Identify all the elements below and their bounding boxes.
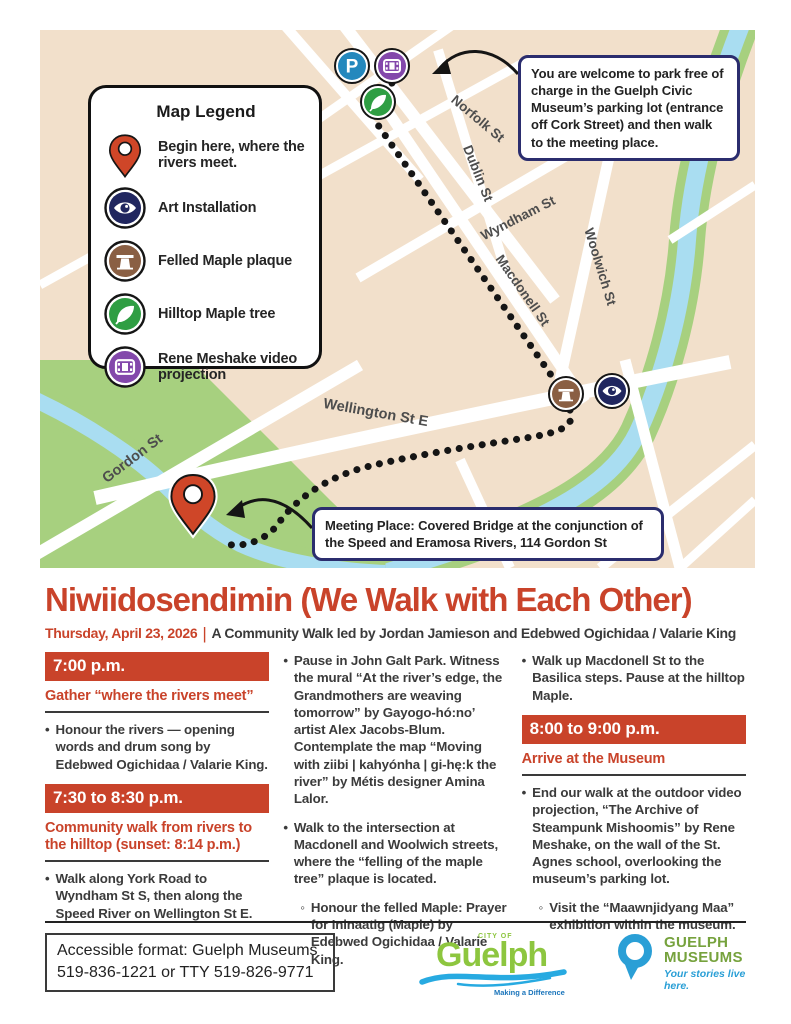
event-description: A Community Walk led by Jordan Jamieson … xyxy=(211,625,736,641)
pin-icon xyxy=(103,132,147,178)
schedule-subhead: Gather “where the rivers meet” xyxy=(45,688,269,713)
legend-item-video: Rene Meshake video projection xyxy=(103,344,309,390)
map-legend: Map Legend Begin here, where the rivers … xyxy=(88,85,322,369)
speech-bubble-icon xyxy=(612,932,658,984)
svg-text:P: P xyxy=(346,57,359,78)
legend-item-stump: Felled Maple plaque xyxy=(103,238,309,284)
accessible-format-box: Accessible format: Guelph Museums 519-83… xyxy=(45,933,335,992)
schedule-bullet: • Walk to the intersection at Macdonell … xyxy=(283,819,507,888)
city-of-guelph-logo: CITY OF Guelph Making a Difference xyxy=(418,926,583,1006)
time-banner: 8:00 to 9:00 p.m. xyxy=(522,715,746,744)
schedule-bullet: • Honour the rivers — opening words and … xyxy=(45,721,269,773)
schedule-column-1: 7:00 p.m. Gather “where the rivers meet”… xyxy=(45,652,269,979)
film-icon xyxy=(103,344,147,390)
legend-item-art: Art Installation xyxy=(103,185,309,231)
parking-callout: You are welcome to park free of charge i… xyxy=(518,55,740,161)
footer-divider xyxy=(45,921,746,923)
legend-item-begin: Begin here, where the rivers meet. xyxy=(103,132,309,178)
schedule-bullet: • Walk up Macdonell St to the Basilica s… xyxy=(522,652,746,704)
legend-title: Map Legend xyxy=(103,102,309,122)
city-tagline: Making a Difference xyxy=(494,988,565,997)
museums-name: GUELPH MUSEUMS xyxy=(664,936,743,965)
accessible-line2: 519-836-1221 or TTY 519-826-9771 xyxy=(57,962,323,984)
schedule-bullet: • End our walk at the outdoor video proj… xyxy=(522,784,746,888)
accessible-line1: Accessible format: Guelph Museums xyxy=(57,940,323,962)
schedule-subhead: Arrive at the Museum xyxy=(522,751,746,776)
leaf-icon xyxy=(103,291,147,337)
schedule-subhead: Community walk from rivers to the hillto… xyxy=(45,820,269,862)
time-banner: 7:00 p.m. xyxy=(45,652,269,681)
film-marker-icon xyxy=(375,49,409,83)
eye-marker-icon xyxy=(595,374,629,408)
stump-icon xyxy=(103,238,147,284)
time-banner: 7:30 to 8:30 p.m. xyxy=(45,784,269,813)
walk-route-map: Norfolk St Dublin St Wyndham St Macdonel… xyxy=(40,30,755,568)
schedule-bullet: • Pause in John Galt Park. Witness the m… xyxy=(283,652,507,808)
legend-item-maple: Hilltop Maple tree xyxy=(103,291,309,337)
schedule-bullet: • Walk along York Road to Wyndham St S, … xyxy=(45,870,269,922)
page-subtitle: Thursday, April 23, 2026|A Community Wal… xyxy=(45,624,755,644)
parking-marker-icon: P xyxy=(335,49,369,83)
maple-marker-icon xyxy=(361,85,395,119)
museums-tagline: Your stories live here. xyxy=(664,968,757,992)
flyer-page: Norfolk St Dublin St Wyndham St Macdonel… xyxy=(0,0,791,1024)
event-date: Thursday, April 23, 2026 xyxy=(45,625,197,641)
meeting-place-callout: Meeting Place: Covered Bridge at the con… xyxy=(312,507,664,561)
guelph-museums-logo: GUELPH MUSEUMS Your stories live here. xyxy=(612,930,757,1002)
subtitle-separator: | xyxy=(202,624,206,643)
eye-icon xyxy=(103,185,147,231)
stump-marker-icon xyxy=(549,377,583,411)
page-title: Niwiidosendimin (We Walk with Each Other… xyxy=(45,581,755,619)
